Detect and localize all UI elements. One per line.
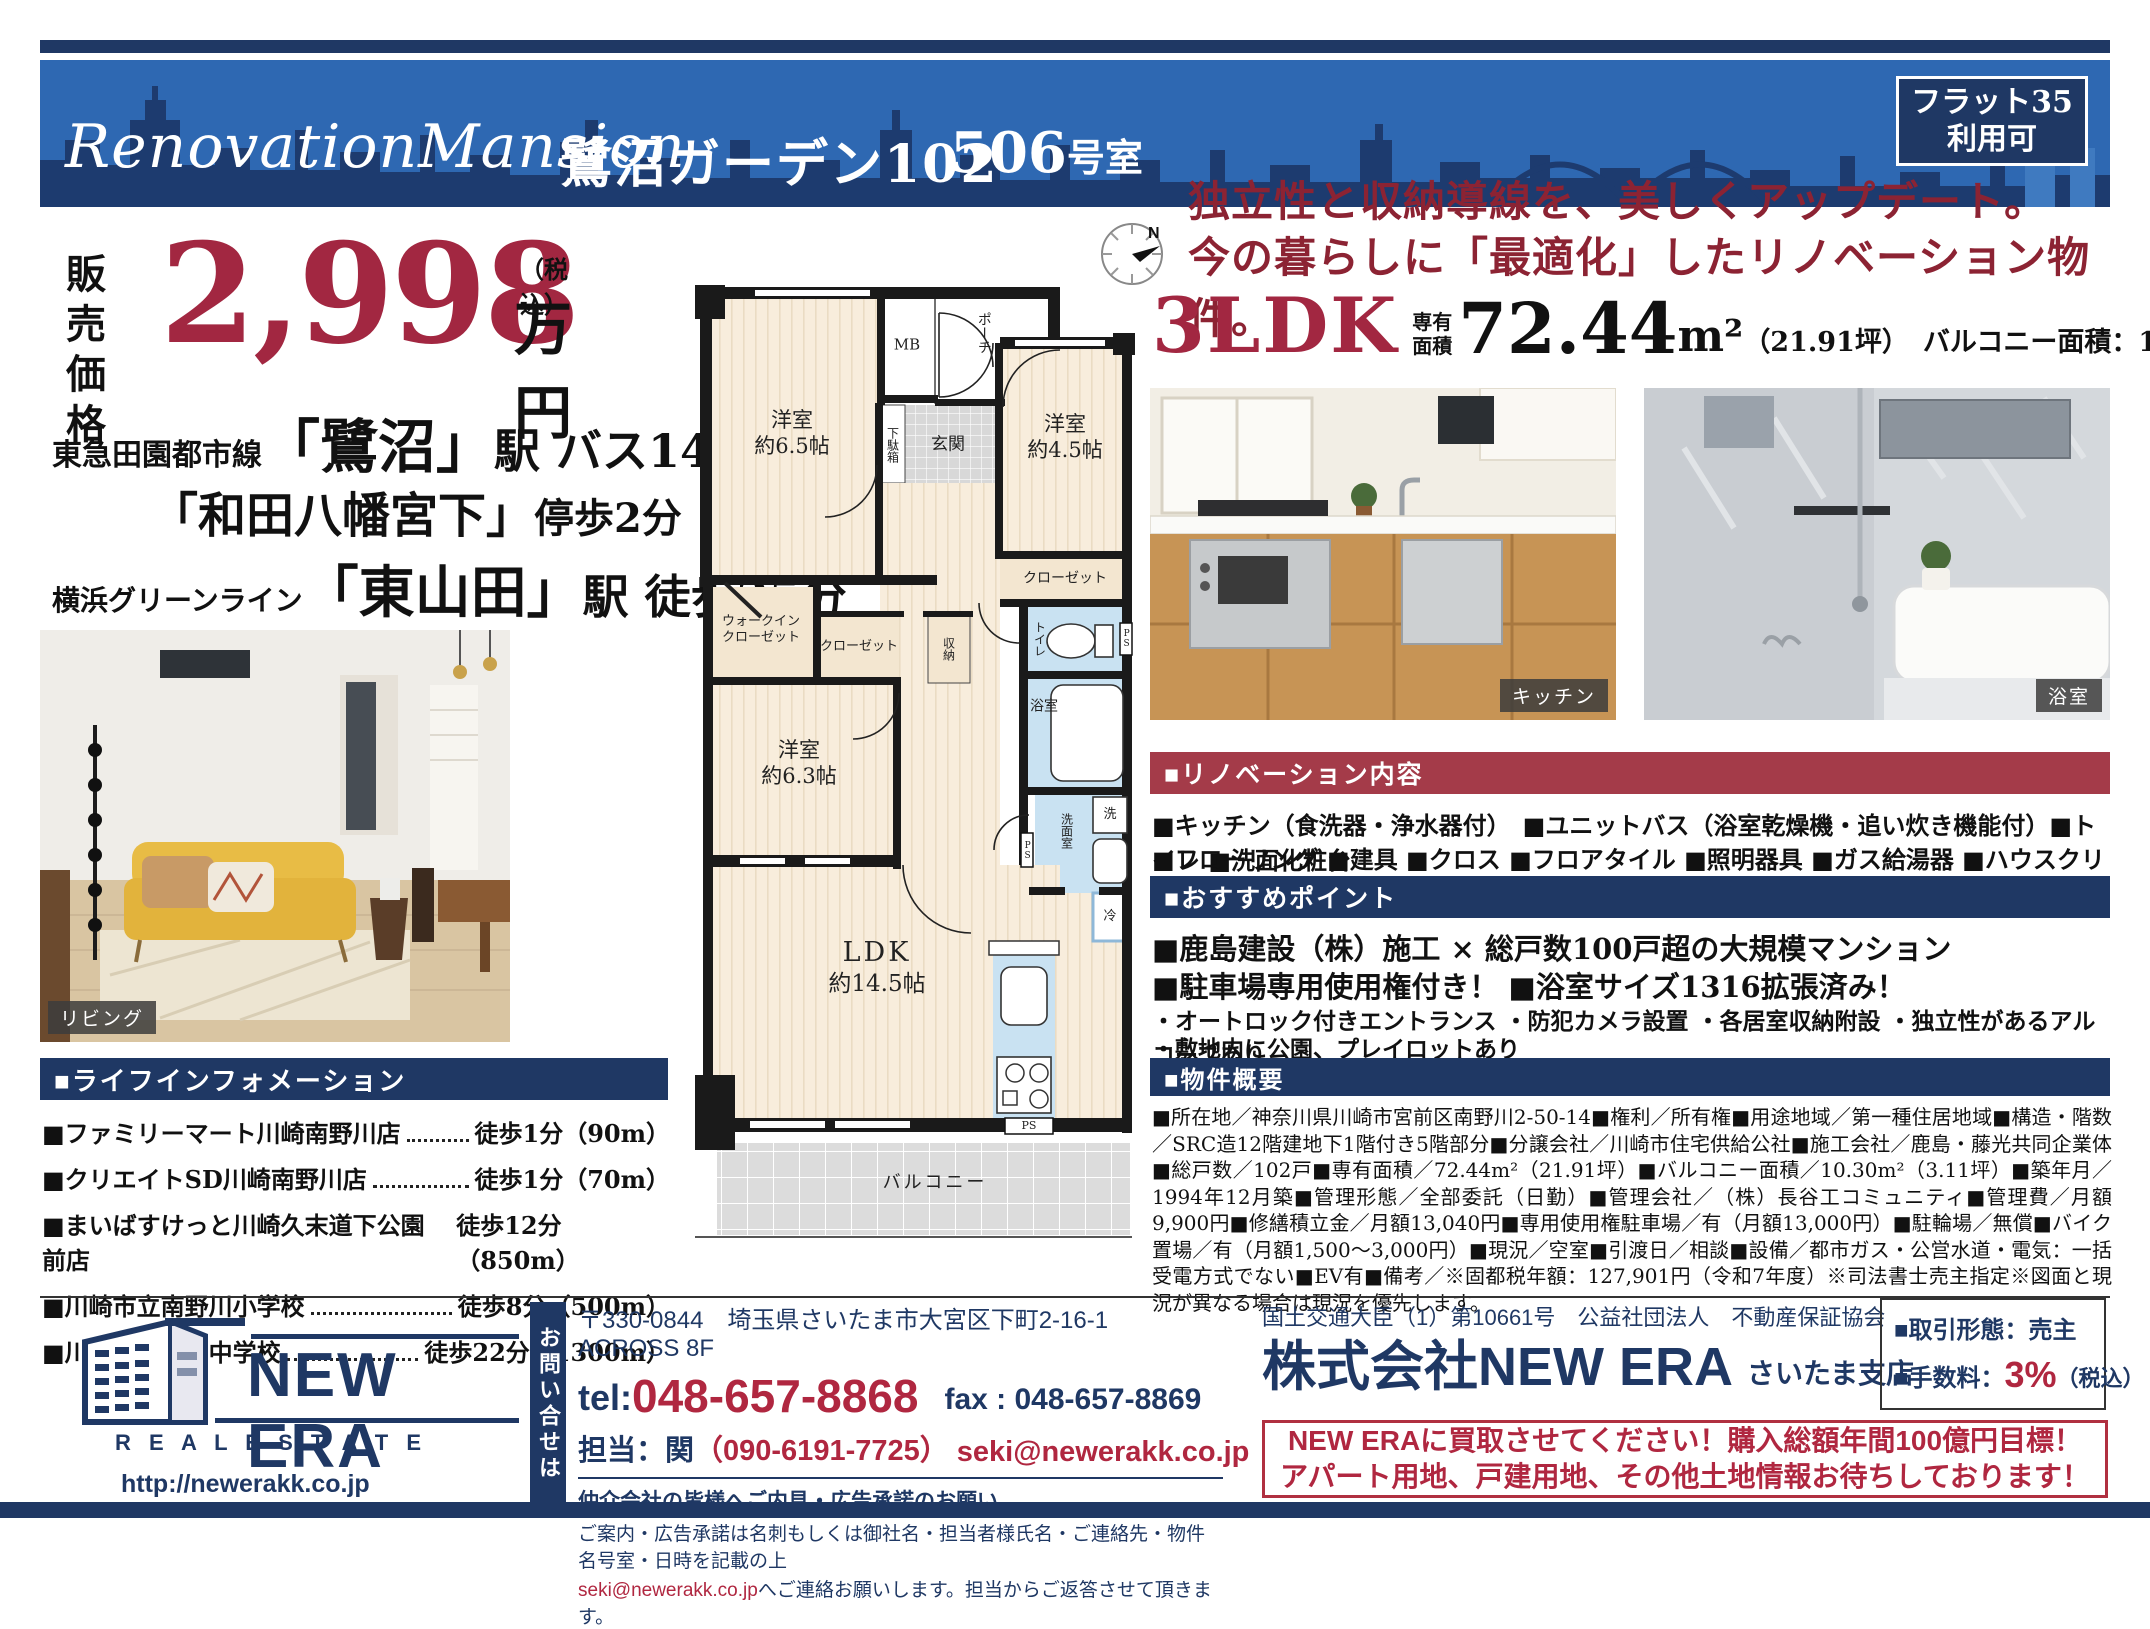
notice-email: seki@newerakk.co.jp (578, 1580, 758, 1601)
top-rule (40, 40, 2110, 53)
living-photo-label: リビング (48, 1001, 156, 1034)
company-url: http://newerakk.co.jp (121, 1470, 370, 1499)
life-info-item: ■ファミリーマート川崎南野川店徒歩1分（90m） (42, 1114, 670, 1149)
deal-type: ■取引形態：売主 (1894, 1310, 2092, 1345)
room-size: 約6.5帖 (754, 433, 829, 459)
points-bold2: ■駐車場専用使用権付き！ ■浴室サイズ1316拡張済み！ (1152, 964, 2112, 1006)
fee-label: ■手数料： (1894, 1358, 2005, 1393)
access-line2-station: 「和田八幡宮下」 (150, 476, 534, 546)
access-line1-prefix: 東急田園都市線 (52, 430, 262, 474)
staff-name: 担当：関 (578, 1427, 694, 1469)
room-name: 洋室 (761, 737, 836, 763)
access-line2-rest: 停歩2分 (534, 486, 682, 544)
room-label-west63: 洋室 約6.3帖 (761, 737, 836, 790)
logo-subtitle: R E A L E S T A T E (115, 1430, 427, 1456)
room-label-getabako: 下駄箱 (885, 427, 900, 463)
room-label-ldk: LDK 約14.5帖 (828, 936, 925, 999)
room-name: 洋室 (754, 407, 829, 433)
room-label-bath: 浴室 (1030, 698, 1058, 716)
life-info-header: ■ライフインフォメーション (40, 1058, 668, 1100)
room-label-ps3: PS (1022, 1119, 1037, 1133)
company-name: 株式会社NEW ERA (1262, 1340, 1733, 1394)
room-label-fridge: 冷 (1103, 909, 1116, 925)
footer-divider (40, 1296, 2110, 1298)
life-info-value: 徒歩1分（70m） (475, 1160, 671, 1195)
building-icon (65, 1312, 245, 1432)
banner-title-name: 鷺沼ガーデン102 (560, 122, 999, 197)
overview-text: ■所在地／神奈川県川崎市宮前区南野川2-50-14■権利／所有権■用途地域／第一… (1152, 1104, 2112, 1316)
life-info-name: ■ファミリーマート川崎南野川店 (42, 1114, 401, 1149)
overview-header: ■物件概要 (1150, 1058, 2110, 1096)
pitch-line1: NEW ERAに買取させてください！購入総額年間100億円目標！ (1288, 1423, 2082, 1459)
life-info-name: ■まいばすけっと川崎久末道下公園前店 (42, 1206, 444, 1276)
area-unit: m² (1677, 311, 1743, 362)
room-size: 約6.3帖 (761, 763, 836, 789)
area-label-line2: 面積 (1412, 334, 1452, 358)
layout-type: 3LDK (1152, 288, 1398, 364)
phone-row: tel: 048-657-8868 fax : 048-657-8869 (578, 1373, 1223, 1419)
kitchen-photo-label: キッチン (1500, 679, 1608, 712)
floor-plan: MB ポーチ 玄関 下駄箱 洋室 約6.5帖 洋室 約4.5帖 クローゼット ウ… (695, 215, 1135, 1250)
purchase-pitch-box: NEW ERAに買取させてください！購入総額年間100億円目標！ アパート用地、… (1262, 1420, 2108, 1498)
dotted-leader (407, 1139, 469, 1142)
life-info-item: ■クリエイトSD川崎南野川店徒歩1分（70m） (42, 1160, 670, 1195)
area-tsubo: （21.91坪） (1743, 320, 1909, 359)
room-label-wic: ウォークイン クローゼット (722, 614, 800, 647)
room-label-washer: 洗 (1103, 807, 1116, 823)
price-label-line1: 販売 (66, 250, 106, 350)
area-value: 72.44 (1458, 294, 1677, 364)
access-line1: 東急田園都市線 「鷺沼」 駅 バス14分 (52, 400, 758, 484)
points-header: ■おすすめポイント (1150, 876, 2110, 918)
area-label: 専有 面積 (1412, 310, 1452, 358)
kitchen-illustration (1150, 388, 1616, 720)
access-line2: 「和田八幡宮下」 停歩2分 (150, 476, 682, 546)
staff-row: 担当：関 （090-6191-7725） seki@newerakk.co.jp (578, 1427, 1223, 1469)
area-label-line1: 専有 (1412, 310, 1452, 334)
logo-rule-bottom (215, 1418, 519, 1423)
fee-tax: （税込） (2057, 1361, 2145, 1393)
logo-name: NEW ERA (247, 1340, 515, 1482)
broker-notice-line1: ご案内・広告承諾は名刺もしくは御社名・担当者様氏名・ご連絡先・物件名号室・日時を… (578, 1519, 1223, 1573)
room-label-balcony: バルコニー (883, 1172, 988, 1195)
bath-photo-label: 浴室 (2036, 679, 2102, 712)
contact-rule (578, 1477, 1223, 1479)
staff-email: seki@newerakk.co.jp (957, 1436, 1250, 1469)
renovation-header: ■リノベーション内容 (1150, 752, 2110, 794)
bath-photo: 浴室 (1644, 388, 2110, 720)
kitchen-photo: キッチン (1150, 388, 1616, 720)
tel-label: tel: (578, 1377, 632, 1419)
life-info-name: ■クリエイトSD川崎南野川店 (42, 1160, 367, 1195)
deal-info-box: ■取引形態：売主 ■手数料： 3% （税込） (1880, 1298, 2106, 1410)
room-label-porch: ポーチ (974, 312, 992, 354)
room-label-toilet: トイレ (1032, 621, 1047, 657)
dotted-leader (373, 1185, 469, 1188)
fee-value: 3% (2005, 1357, 2057, 1393)
banner-room-suffix: 号室 (1067, 127, 1143, 182)
room-label-closet45: クローゼット (1023, 570, 1107, 588)
life-info-value: 徒歩1分（90m） (475, 1114, 671, 1149)
room-label-mb: MB (894, 336, 920, 355)
balcony-area: バルコニー面積：10.30m² (1923, 320, 2150, 359)
broker-notice-line2: seki@newerakk.co.jpへご連絡お願いします。担当からご返答させて… (578, 1575, 1223, 1629)
fax-number: fax : 048-657-8869 (944, 1383, 1201, 1417)
flat35-badge-line2: 利用可 (1947, 121, 2037, 159)
catch-copy-line1: 独立性と収納導線を、美しくアップデート。 (1188, 168, 2148, 229)
points-bold1: ■鹿島建設（株）施工 × 総戸数100戸超の大規模マンション (1152, 926, 2112, 968)
life-info-item: ■まいばすけっと川崎久末道下公園前店徒歩12分（850m） (42, 1206, 670, 1276)
life-info-value: 徒歩12分（850m） (456, 1206, 670, 1276)
banner-room: 506 号室 (950, 120, 1143, 186)
bath-illustration (1644, 388, 2110, 720)
banner-room-number: 506 (950, 120, 1067, 186)
access-line3-station: 「東山田」 (303, 548, 583, 629)
fee-row: ■手数料： 3% （税込） (1894, 1357, 2092, 1393)
layout-area-row: 3LDK 専有 面積 72.44 m² （21.91坪） バルコニー面積：10.… (1152, 288, 2150, 364)
room-name: LDK (828, 936, 925, 970)
flat35-badge-line1: フラット35 (1911, 84, 2073, 122)
room-label-ps2: PS (1021, 841, 1032, 861)
living-room-illustration (40, 630, 510, 1042)
floor-plan-drawing (695, 215, 1135, 1250)
room-name: 洋室 (1027, 411, 1102, 437)
inquiry-vertical-label: お問い合せは (530, 1302, 566, 1506)
room-label-ps1: PS (1120, 629, 1131, 649)
logo-rule-top (251, 1334, 519, 1339)
room-label-west65: 洋室 約6.5帖 (754, 407, 829, 460)
real-estate-flyer: { "banner": { "title_en": "RenovationMan… (0, 0, 2150, 1518)
room-size: 約14.5帖 (828, 970, 925, 999)
office-address: 〒330-0844 埼玉県さいたま市大宮区下町2-16-1 ACROSS 8F (578, 1300, 1223, 1363)
bottom-rule (0, 1502, 2150, 1518)
access-line1-station: 「鷺沼」 (262, 400, 494, 484)
room-size: 約4.5帖 (1027, 437, 1102, 463)
compass-n-label: N (1148, 225, 1160, 242)
contact-block: 〒330-0844 埼玉県さいたま市大宮区下町2-16-1 ACROSS 8F … (578, 1300, 1223, 1629)
room-label-genkan: 玄関 (931, 434, 965, 455)
room-name: クローゼット (722, 630, 800, 646)
access-line3-prefix: 横浜グリーンライン (52, 579, 303, 619)
tel-number: 048-657-8868 (632, 1373, 918, 1419)
company-logo: NEW ERA R E A L E S T A T E http://newer… (55, 1310, 515, 1510)
staff-phone: （090-6191-7725） (694, 1427, 949, 1469)
flat35-badge: フラット35 利用可 (1896, 76, 2088, 166)
room-label-shuno: 収納 (941, 637, 956, 661)
living-room-photo: リビング (40, 630, 510, 1042)
room-name: ウォークイン (722, 614, 800, 630)
room-label-senmen: 洗面室 (1059, 813, 1074, 849)
room-label-closet-small: クローゼット (820, 639, 898, 655)
pitch-line2: アパート用地、戸建用地、その他土地情報お待ちしております！ (1280, 1459, 2090, 1495)
room-label-west45: 洋室 約4.5帖 (1027, 411, 1102, 464)
